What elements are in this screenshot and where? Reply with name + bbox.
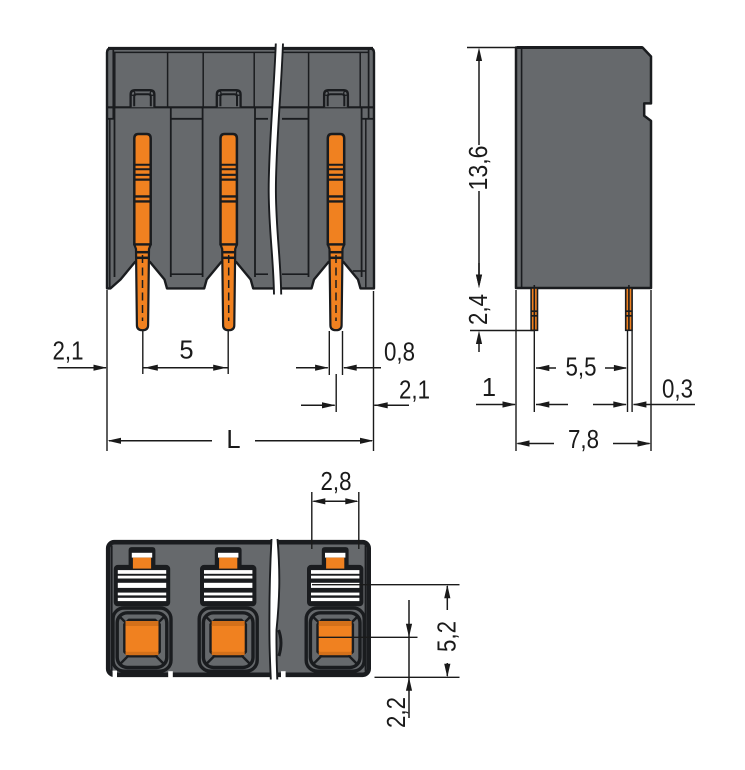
svg-text:5,2: 5,2 bbox=[433, 621, 461, 652]
svg-text:2,1: 2,1 bbox=[399, 377, 430, 405]
svg-text:0,3: 0,3 bbox=[662, 376, 693, 404]
svg-text:0,8: 0,8 bbox=[384, 339, 415, 367]
svg-text:2,1: 2,1 bbox=[53, 338, 84, 366]
svg-text:7,8: 7,8 bbox=[568, 426, 599, 454]
svg-text:2,2: 2,2 bbox=[383, 697, 411, 728]
svg-text:5,5: 5,5 bbox=[566, 354, 597, 382]
svg-text:1: 1 bbox=[482, 374, 496, 402]
svg-text:L: L bbox=[226, 426, 240, 454]
svg-text:13,6: 13,6 bbox=[465, 146, 493, 191]
svg-text:5: 5 bbox=[179, 337, 193, 365]
svg-text:2,8: 2,8 bbox=[321, 468, 352, 496]
svg-text:2,4: 2,4 bbox=[465, 294, 493, 325]
